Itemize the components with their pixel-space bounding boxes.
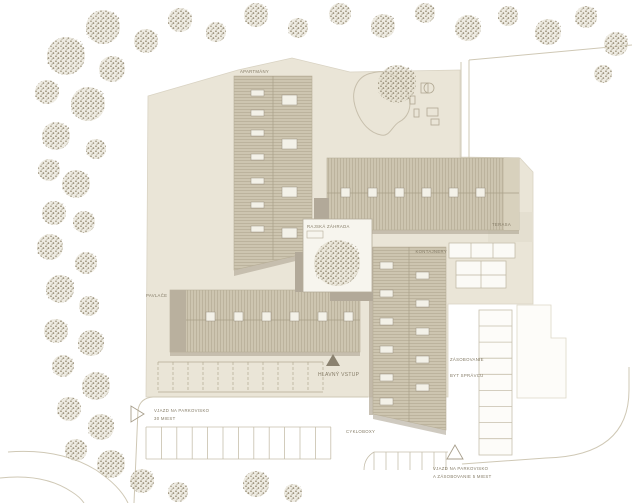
tree-icon	[46, 275, 74, 303]
tree-icon	[206, 22, 226, 42]
parking-right-arrow-icon	[447, 445, 463, 459]
tree-icon	[168, 8, 192, 32]
tree-icon	[455, 15, 481, 41]
label-containers: KONTAJNERY	[416, 249, 448, 254]
tree-icon	[244, 3, 268, 27]
tree-icon	[535, 19, 561, 45]
tree-icon	[604, 32, 628, 56]
label-terrace: TERASA	[492, 222, 511, 227]
tree-icon	[79, 296, 99, 316]
tree-icon	[415, 3, 435, 23]
label-bike-boxes: CYKLOBOXY	[346, 429, 375, 434]
label-main-entrance: HLAVNÝ VSTUP	[318, 371, 360, 378]
tree-icon	[284, 484, 302, 502]
tree-icon	[78, 330, 104, 356]
tree-icon	[42, 122, 70, 150]
label-parking-left-1: VJAZD NA PARKOVISKO	[154, 408, 210, 413]
tree-icon	[44, 319, 68, 343]
building-apartments	[234, 76, 312, 276]
tree-icon	[65, 439, 87, 461]
building-southcentre	[369, 247, 446, 435]
parking-east-ladder	[479, 310, 512, 455]
tree-icon	[38, 159, 60, 181]
tree-icon	[37, 234, 63, 260]
label-caretaker-flat: BYT SPRÁVCU	[450, 373, 484, 378]
tree-icon	[88, 414, 114, 440]
label-parking-right-2: A ZÁSOBOVANIE 5 MIEST	[433, 474, 492, 479]
label-apartments: APARTMÁNY	[240, 69, 269, 74]
tree-icon	[168, 482, 188, 502]
tree-icon	[35, 80, 59, 104]
tree-icon	[371, 14, 395, 38]
tree-icon	[329, 3, 351, 25]
label-parking-left-2: 30 MIEST	[154, 416, 176, 421]
label-gallery: PAVLAČE	[146, 293, 167, 298]
east-plot-outline	[517, 305, 566, 398]
container-stand	[449, 243, 515, 288]
tree-icon	[378, 65, 416, 103]
tree-icon	[82, 372, 110, 400]
tree-icon	[97, 450, 125, 478]
site-plan-drawing: APARTMÁNY RAJSKÁ ZÁHRADA PAVLAČE TERASA …	[0, 0, 632, 503]
tree-icon	[594, 65, 612, 83]
tree-icon	[243, 471, 269, 497]
tree-icon	[75, 252, 97, 274]
tree-icon	[86, 10, 120, 44]
tree-icon	[42, 201, 66, 225]
parking-lower	[146, 427, 331, 459]
tree-icon	[62, 170, 90, 198]
tree-icon	[57, 397, 81, 421]
tree-icon	[86, 139, 106, 159]
label-supply: ZÁSOBOVANIE	[450, 357, 484, 362]
tree-icon	[99, 56, 125, 82]
tree-icon	[288, 18, 308, 38]
site-plan-canvas: APARTMÁNY RAJSKÁ ZÁHRADA PAVLAČE TERASA …	[0, 0, 632, 503]
label-paradise-garden: RAJSKÁ ZÁHRADA	[307, 224, 350, 229]
label-parking-right-1: VJAZD NA PARKOVISKO	[433, 466, 489, 471]
tree-icon	[134, 29, 158, 53]
tree-icon	[47, 37, 85, 75]
tree-icon	[71, 87, 105, 121]
tree-icon	[575, 6, 597, 28]
tree-icon	[73, 211, 95, 233]
tree-icon	[314, 240, 360, 286]
tree-icon	[498, 6, 518, 26]
tree-icon	[130, 469, 154, 493]
tree-icon	[52, 355, 74, 377]
